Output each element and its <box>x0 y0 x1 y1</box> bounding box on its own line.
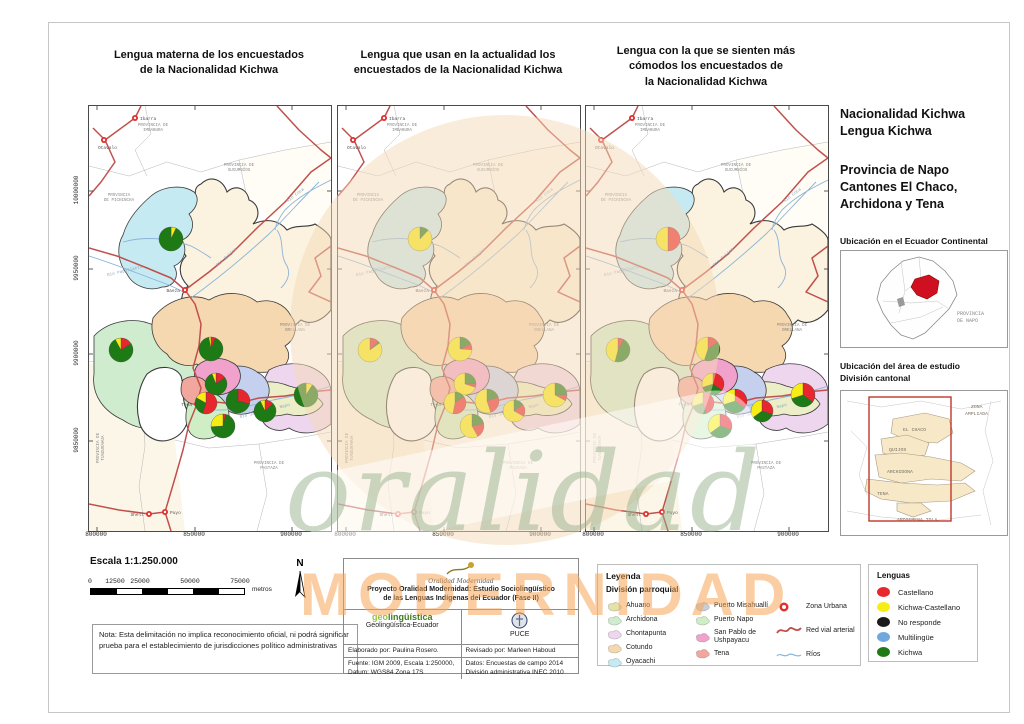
province-label: PROVINCIA DETUNGURAHUA <box>97 432 106 463</box>
map-svg: Río CocaRío QuijosRío PapallactaRío Jatu… <box>586 106 828 531</box>
inset1-label-line2: DE NAPO <box>957 318 978 324</box>
credits-header: Oralidad Modernidad Proyecto Oralidad Mo… <box>344 559 578 610</box>
legend-subtitle: División parroquial <box>606 585 678 594</box>
city-label: Ibarra <box>140 116 157 122</box>
lengua-label: Multilingüe <box>898 633 934 642</box>
scale-title: Escala 1:1.250.000 <box>90 556 178 567</box>
org-right-name: PUCE <box>462 631 579 638</box>
zona_urbana-icon <box>776 601 802 613</box>
city-marker-center <box>397 513 399 515</box>
legend-symbol-label: Ríos <box>806 651 820 659</box>
y-axis-label: 9950000 <box>73 248 83 288</box>
map-sheet-page: Lengua materna de los encuestados de la … <box>0 0 1024 724</box>
province-label: PROVINCIA DETUNGURAHUA <box>346 432 355 463</box>
rios-icon <box>776 649 802 661</box>
city-label: Otavalo <box>595 145 614 151</box>
legend-parishes-col2: Puerto MisahuallíPuerto NapoSan Pablo de… <box>694 601 772 662</box>
x-axis-label: 800000 <box>578 531 608 538</box>
scale-tick-label: 25000 <box>125 578 155 585</box>
city-label: Shell <box>379 512 393 518</box>
province-label: PROVINCIA DEPASTAZA <box>503 462 534 471</box>
x-axis-label: 900000 <box>773 531 803 538</box>
province-label: PROVINCIA DEORELLANA <box>280 324 311 333</box>
province-boundary <box>754 444 764 531</box>
legend-parish-label: Oyacachi <box>626 658 655 666</box>
lenguas-items: CastellanoKichwa-CastellanoNo respondeMu… <box>877 587 973 662</box>
province-label: PROVINCIADE PICHINCHA <box>601 194 632 203</box>
city-marker-center <box>383 117 385 119</box>
x-axis-label: 800000 <box>330 531 360 538</box>
city-label: Shell <box>130 512 144 518</box>
city-label: Tena <box>181 402 192 408</box>
city-marker-center <box>413 511 415 513</box>
province-label: PROVINCIA DEPASTAZA <box>751 462 782 471</box>
road-line <box>590 106 638 140</box>
legend-parish-label: Puerto Misahuallí <box>714 602 768 610</box>
inset2-title: Ubicación del área de estudio División c… <box>840 360 1010 385</box>
city-label: Tena <box>430 402 441 408</box>
province-label: PROVINCIA DETUNGURAHUA <box>594 432 603 463</box>
province-label: PROVINCIA DEORELLANA <box>777 324 808 333</box>
datos-info: Datos: Encuestas de campo 2014 División … <box>462 658 579 679</box>
city-label: Puyo <box>419 510 430 516</box>
inset2-zona-label-2: AMPLIADA <box>965 411 988 417</box>
inset2-zona-label-1: ZONA <box>971 404 983 410</box>
city-label: Baeza <box>663 288 677 294</box>
lengua-item: No responde <box>877 617 973 627</box>
city-marker-center <box>184 289 186 291</box>
province-label: PROVINCIA DESUCUMBÍOS <box>224 164 255 173</box>
oralidad-logo-script: Oralidad Modernidad <box>344 578 578 585</box>
note-box: Nota: Esta delimitación no implica recon… <box>92 624 358 674</box>
legend-parish-item: Puerto Napo <box>694 615 772 626</box>
x-axis-label: 800000 <box>81 531 111 538</box>
legend-symbol-item: Zona Urbana <box>776 601 856 613</box>
lengua-label: No responde <box>898 618 941 627</box>
oralidad-logo-icon <box>444 561 478 576</box>
city-label: Otavalo <box>347 145 366 151</box>
province-label: PROVINCIA DESUCUMBÍOS <box>473 164 504 173</box>
scale-unit: metros <box>252 586 272 593</box>
province-label: PROVINCIA DEPASTAZA <box>254 462 285 471</box>
legend-parish-item: Ahuano <box>606 601 690 612</box>
city-marker-center <box>645 513 647 515</box>
scale-tick-label: 75000 <box>225 578 255 585</box>
city-label: Puyo <box>667 510 678 516</box>
legend-symbols: Zona UrbanaRed vial arterialRíos <box>776 601 856 673</box>
city-marker-center <box>600 139 602 141</box>
x-axis-label: 850000 <box>179 531 209 538</box>
road-line <box>93 106 141 140</box>
lengua-item: Multilingüe <box>877 632 973 642</box>
x-axis-label: 850000 <box>428 531 458 538</box>
legend-parish-label: Tena <box>714 650 729 658</box>
map-svg: Río CocaRío QuijosRío PapallactaRío Jatu… <box>89 106 331 531</box>
org-left-name: Geolingüística-Ecuador <box>344 622 461 629</box>
legend-title: Leyenda <box>606 571 641 581</box>
city-marker-center <box>352 139 354 141</box>
city-marker-center <box>134 117 136 119</box>
province-boundary <box>257 444 267 531</box>
puce-logo-icon <box>511 612 528 629</box>
legend-symbol-item: Red vial arterial <box>776 625 856 637</box>
province-label: PROVINCIA DESUCUMBÍOS <box>721 164 752 173</box>
scale-seg <box>91 589 116 594</box>
city-label: Baeza <box>166 288 180 294</box>
map2-panel: Río CocaRío QuijosRío PapallactaRío Jatu… <box>337 105 581 532</box>
y-axis-label: 9850000 <box>73 420 83 460</box>
scale-seg <box>142 589 167 594</box>
city-label: Ibarra <box>389 116 406 122</box>
map3-panel: Río CocaRío QuijosRío PapallactaRío Jatu… <box>585 105 829 532</box>
pie-slice-oyacachi <box>408 227 432 251</box>
geolinguistica-logo-cell: geolingüística Geolingüística-Ecuador <box>344 610 462 644</box>
legend-symbol-item: Ríos <box>776 649 856 661</box>
lengua-color-dot <box>877 587 890 597</box>
map-svg: Río CocaRío QuijosRío PapallactaRío Jatu… <box>338 106 580 531</box>
lengua-label: Kichwa-Castellano <box>898 603 960 612</box>
parish-blob-icon <box>606 629 622 640</box>
legend-box: Leyenda División parroquial AhuanoArchid… <box>597 564 861 666</box>
legend-parish-item: Tena <box>694 648 772 659</box>
parish-blob-icon <box>606 657 622 668</box>
legend-parish-label: San Pablo de Ushpayacu <box>714 629 756 645</box>
lengua-color-dot <box>877 617 890 627</box>
lengua-color-dot <box>877 632 890 642</box>
legend-parish-item: Oyacachi <box>606 657 690 668</box>
city-marker-center <box>148 513 150 515</box>
inset1-label-line1: PROVINCIA <box>957 311 984 317</box>
x-axis-label: 900000 <box>525 531 555 538</box>
lengua-label: Castellano <box>898 588 933 597</box>
ecuador-inset-svg: PROVINCIA DE NAPO <box>841 251 1007 347</box>
province-label: PROVINCIA DEIMBABURA <box>635 124 666 133</box>
x-axis-label: 850000 <box>676 531 706 538</box>
legend-parish-item: Archidona <box>606 615 690 626</box>
city-label: Tena <box>678 402 689 408</box>
pie-slice-chontapunta <box>294 383 318 407</box>
lengua-label: Kichwa <box>898 648 922 657</box>
legend-parish-item: San Pablo de Ushpayacu <box>694 629 772 645</box>
project-title: Proyecto Oralidad Modernidad: Estudio So… <box>344 585 578 604</box>
province-label: PROVINCIA DEIMBABURA <box>387 124 418 133</box>
legend-parish-item: Chontapunta <box>606 629 690 640</box>
canton-inset-map: ZONA AMPLIADA EL CHACO QUIJOS ARCHIDONA … <box>840 390 1008 536</box>
revisado-por: Revisado por: Marleen Haboud <box>462 645 579 657</box>
inset2-quijos-label: QUIJOS <box>889 447 906 453</box>
legend-parish-label: Ahuano <box>626 602 650 610</box>
scale-seg <box>218 589 244 594</box>
legend-parish-label: Cotundo <box>626 644 652 652</box>
map3-title: Lengua con la que se sienten más cómodos… <box>585 44 827 90</box>
inset2-tena-label: TENA <box>877 491 889 497</box>
province-label: PROVINCIADE PICHINCHA <box>104 194 135 203</box>
city-label: Ibarra <box>637 116 654 122</box>
lenguas-box: Lenguas CastellanoKichwa-CastellanoNo re… <box>868 564 978 662</box>
road-line <box>342 106 390 140</box>
lengua-color-dot <box>877 647 890 657</box>
lengua-item: Kichwa <box>877 647 973 657</box>
legend-symbol-label: Zona Urbana <box>806 603 847 611</box>
city-marker-center <box>164 511 166 513</box>
city-label: Puyo <box>170 510 181 516</box>
city-marker-center <box>681 289 683 291</box>
province-boundary <box>506 444 516 531</box>
geolinguistica-logo-rest: lingüística <box>388 612 433 622</box>
parish-blob-icon <box>694 601 710 612</box>
province-label: PROVINCIA DEORELLANA <box>529 324 560 333</box>
fuente-info: Fuente: IGM 2009, Escala 1:250000, Datum… <box>344 658 462 679</box>
map1-title: Lengua materna de los encuestados de la … <box>88 48 330 79</box>
y-axis-label: 9900000 <box>73 333 83 373</box>
province-label: PROVINCIA DEIMBABURA <box>138 124 169 133</box>
inset2-archidona-label: ARCHIDONA <box>887 469 913 475</box>
province-label: PROVINCIADE PICHINCHA <box>353 194 384 203</box>
lengua-item: Kichwa-Castellano <box>877 602 973 612</box>
map2-title: Lengua que usan en la actualidad los enc… <box>337 48 579 79</box>
lenguas-title: Lenguas <box>877 571 910 580</box>
legend-parishes-col1: AhuanoArchidonaChontapuntaCotundoOyacach… <box>606 601 690 671</box>
geolinguistica-logo: geo <box>372 612 388 622</box>
legend-parish-item: Puerto Misahuallí <box>694 601 772 612</box>
canton-inset-svg: ZONA AMPLIADA EL CHACO QUIJOS ARCHIDONA … <box>841 391 1007 535</box>
parish-blob-icon <box>606 643 622 654</box>
lengua-color-dot <box>877 602 890 612</box>
pie-slice-oyacachi <box>159 227 183 251</box>
puce-logo-cell: PUCE <box>462 610 579 644</box>
north-arrow-icon <box>293 570 307 600</box>
scale-bar <box>90 588 245 595</box>
city-label: Baeza <box>415 288 429 294</box>
legend-parish-label: Archidona <box>626 616 658 624</box>
city-label: Otavalo <box>98 145 117 151</box>
legend-symbol-label: Red vial arterial <box>806 627 855 635</box>
parish-blob-icon <box>694 615 710 626</box>
city-marker-center <box>661 511 663 513</box>
lengua-item: Castellano <box>877 587 973 597</box>
city-marker-center <box>103 139 105 141</box>
credits-box: Oralidad Modernidad Proyecto Oralidad Mo… <box>343 558 579 674</box>
sheet-main-title: Nacionalidad Kichwa Lengua Kichwa <box>840 106 1008 140</box>
inset2-arosemena-label: AROSEMENA TOLA <box>897 517 937 523</box>
north-label: N <box>293 558 307 569</box>
legend-parish-label: Chontapunta <box>626 630 666 638</box>
parish-blob-icon <box>606 615 622 626</box>
red_vial-icon <box>776 625 802 637</box>
x-axis-label: 900000 <box>276 531 306 538</box>
parish-blob-icon <box>606 601 622 612</box>
map1-panel: Río CocaRío QuijosRío PapallactaRío Jatu… <box>88 105 332 532</box>
scale-seg <box>193 589 218 594</box>
ecuador-inset-map: PROVINCIA DE NAPO <box>840 250 1008 348</box>
inset1-title: Ubicación en el Ecuador Continental <box>840 235 1010 247</box>
scale-seg <box>167 589 193 594</box>
y-axis-label: 10000000 <box>73 170 83 210</box>
ecuador-outline <box>877 257 957 339</box>
scale-tick-label: 50000 <box>175 578 205 585</box>
legend-parish-item: Cotundo <box>606 643 690 654</box>
parish-blob-icon <box>694 632 710 643</box>
city-label: Shell <box>627 512 641 518</box>
city-marker-center <box>631 117 633 119</box>
city-marker-center <box>433 289 435 291</box>
sheet-region-title: Provincia de Napo Cantones El Chaco, Arc… <box>840 162 1008 213</box>
elaborado-por: Elaborado por: Paulina Rosero. <box>344 645 462 657</box>
scale-seg <box>116 589 142 594</box>
parish-blob-icon <box>694 648 710 659</box>
legend-parish-label: Puerto Napo <box>714 616 753 624</box>
inset2-elchaco-label: EL CHACO <box>903 427 926 433</box>
